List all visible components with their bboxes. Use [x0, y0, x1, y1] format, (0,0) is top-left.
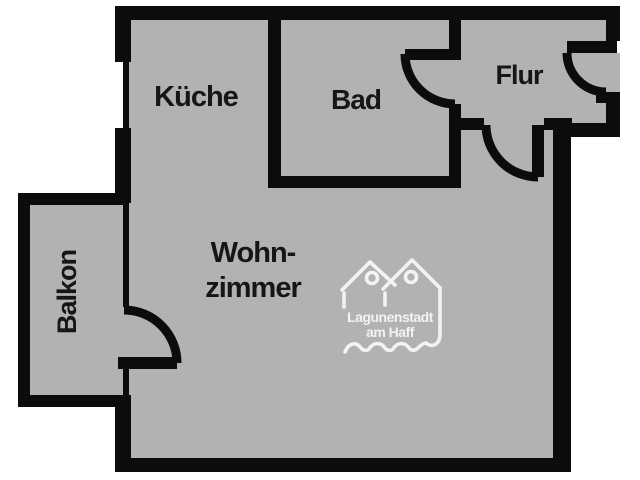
floor-plan: Küche Bad Flur Wohn- zimmer Balkon Lagun…	[0, 0, 640, 480]
entry-door-leaf	[567, 41, 617, 53]
wall-balcony-left	[18, 193, 30, 407]
wall-bathroom-bottom	[268, 176, 461, 188]
balcony-door-leaf	[118, 357, 177, 369]
wall-entry-niche-return	[596, 92, 620, 103]
wall-top	[115, 6, 620, 20]
wall-hallway-livingroom-left	[449, 118, 484, 130]
room-label-kitchen: Küche	[126, 81, 266, 114]
bathroom-door-leaf	[405, 49, 461, 60]
wall-bathroom-hallway-upper	[449, 20, 461, 52]
balcony-window-upper	[123, 203, 129, 307]
wall-hallway-livingroom-right	[544, 118, 572, 130]
room-label-hallway: Flur	[459, 60, 579, 91]
floor-entry-niche	[596, 53, 620, 92]
wall-balcony-top	[18, 193, 129, 205]
wall-right-main	[553, 123, 571, 472]
room-label-balcony: Balkon	[52, 212, 82, 372]
wall-bathroom-hallway-lower	[449, 104, 461, 188]
wall-left-middle	[115, 128, 131, 203]
room-label-living-room-line1: Wohn-	[183, 236, 323, 271]
room-label-living-room: Wohn- zimmer	[183, 236, 323, 306]
wall-balcony-bottom	[18, 395, 129, 407]
livingroom-door-leaf	[532, 125, 544, 177]
wall-left-upper	[115, 6, 131, 62]
room-label-living-room-line2: zimmer	[183, 271, 323, 306]
wall-bottom	[115, 458, 571, 472]
balcony-window-lower	[123, 369, 129, 395]
room-label-bathroom: Bad	[296, 84, 416, 116]
wall-kitchen-bathroom	[268, 20, 281, 188]
wall-right-hallway-upper	[606, 6, 620, 41]
